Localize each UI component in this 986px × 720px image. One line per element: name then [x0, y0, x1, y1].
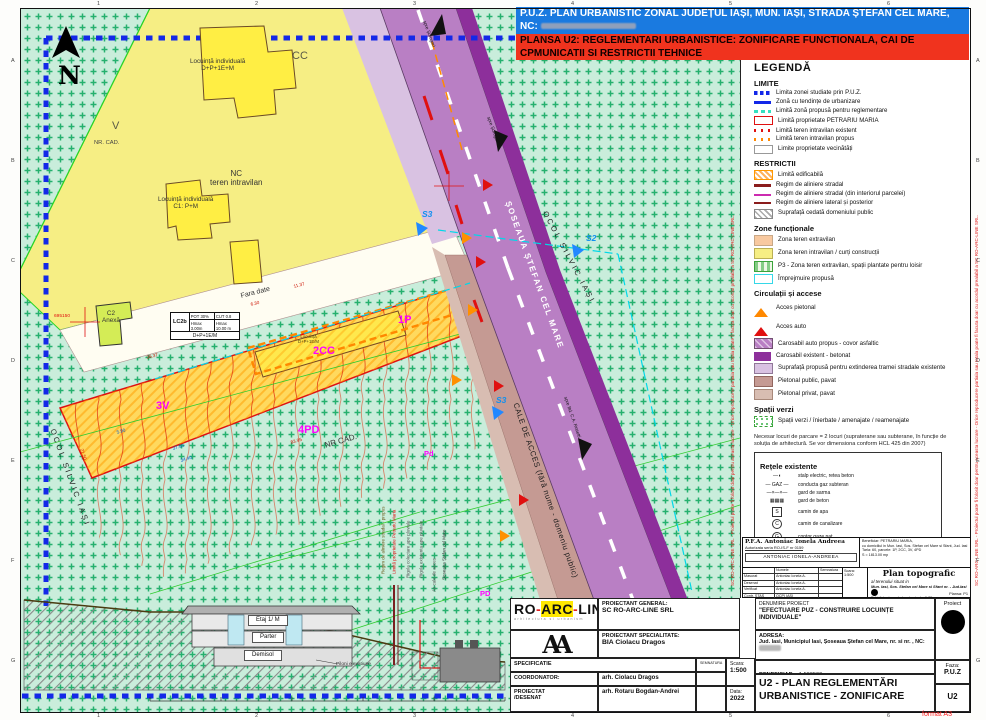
- map-label: 11.37: [293, 281, 305, 289]
- plansa-value: P1: [963, 591, 968, 596]
- grayHatch-swatch: [754, 209, 773, 219]
- map-label: CALE DE ACCES (fără nume - domeniu publi…: [511, 402, 579, 579]
- proiectant-general: SC RO-ARC-LINE SRL: [602, 607, 736, 614]
- frame-number: 5: [729, 713, 732, 719]
- legend-item: Limita zonei studiate prin P.U.Z.: [754, 90, 964, 97]
- frame-letter: F: [976, 558, 979, 564]
- networks-box: Rețele existente —◖stalp electric, retea…: [754, 452, 942, 549]
- topo-scale: 1:500: [844, 573, 854, 577]
- legend-item: Suprafață cedată domeniului public: [754, 209, 964, 219]
- network-item-label: gard de sarma: [798, 490, 830, 496]
- proiectat-label: PROIECTAT /DESENAT: [510, 686, 598, 712]
- map-label: Ax cale de acces: [433, 558, 438, 592]
- map-label: S2: [586, 234, 596, 244]
- legend-item-label: Limită zonă propusă pentru reglementare: [776, 108, 887, 115]
- copyright-note-outer: SC RO-ARC-LINE SRL - Proiectul poate fi …: [974, 120, 979, 680]
- plan-topografic-block: P.F.A. Antoniac Ionela Andreea Autorizat…: [742, 537, 971, 598]
- legend-item: Limită zonă propusă pentru reglementare: [754, 108, 964, 115]
- lamp-symbol: —◖: [760, 473, 794, 479]
- legend: LEGENDĂ LIMITELimita zonei studiate prin…: [754, 62, 964, 549]
- network-item: Scamin de apa: [760, 507, 936, 517]
- map-label: spre Bd. C.A. Rosetti: [563, 396, 582, 438]
- cyanRect-swatch: [754, 274, 773, 284]
- legend-item-label: Limita zonei studiate prin P.U.Z.: [776, 90, 862, 97]
- copyright-note-inner: SC RO-ARC-LINE SRL - Proiectul poate fi …: [730, 120, 735, 680]
- peach-swatch: [754, 235, 773, 246]
- frame-number: 5: [729, 1, 732, 7]
- legend-item-label: Limită teren intravilan existent: [776, 128, 857, 135]
- magentaLine-swatch: [754, 194, 771, 196]
- format-note: format A3: [922, 711, 952, 718]
- legend-item: Acces auto: [754, 319, 964, 336]
- legend-item: Zonă cu tendințe de urbanizare: [754, 99, 964, 106]
- coordonator-label: COORDONATOR:: [510, 672, 598, 686]
- legend-item: Zona teren intravilan / curți construcți…: [754, 248, 964, 259]
- frame-letter: B: [976, 158, 980, 164]
- redDots-swatch: [754, 129, 771, 132]
- legend-section-title: LIMITE: [754, 79, 964, 88]
- map-label: S3: [496, 396, 506, 406]
- logo-subtitle: arhitectura si urbanism: [514, 617, 594, 621]
- map-label: Locuință D+P+1E/M: [298, 335, 319, 345]
- frame-number: 6: [887, 713, 890, 719]
- darkPurple-swatch: [754, 352, 771, 361]
- map-label: 3V: [156, 400, 169, 412]
- plansa-label: Plansa:: [949, 591, 962, 596]
- proiectant-specialitate: BIA Ciolacu Dragos: [602, 639, 736, 646]
- network-item-label: conducta gaz subteran: [798, 482, 849, 488]
- legend-section-title: Circulații și accese: [754, 289, 964, 298]
- network-item: —×—×—gard de sarma: [760, 490, 936, 496]
- map-label: Demisol: [244, 650, 282, 661]
- parking-note: Necesar locuri de parcare = 2 locuri (su…: [754, 434, 950, 448]
- map-label: 37.50: [172, 443, 184, 451]
- map-label: OCOL SILVIC IAȘI: [48, 428, 91, 528]
- legend-item: Spații verzi / înierbate / amenajate / r…: [754, 416, 964, 427]
- map-label: Etaj 1/ M: [248, 615, 288, 626]
- legend-item-label: Limite proprietate vecinătăți: [778, 146, 853, 153]
- frame-letter: A: [976, 58, 980, 64]
- map-label: spre Șorogari: [486, 116, 500, 144]
- frame-number: 1: [97, 713, 100, 719]
- legend-item: Acces pietonal: [754, 300, 964, 317]
- legend-item-label: Carosabil auto propus - covor asfaltic: [778, 341, 879, 348]
- map-label: Locuință individuală C1: P+M: [158, 196, 213, 210]
- ci-symbol: C: [760, 519, 794, 529]
- legend-item: Împrejmuire propusă: [754, 274, 964, 284]
- legend-item-label: Regim de aliniere lateral și posterior: [776, 200, 873, 207]
- legend-item-label: Pietonal privat, pavat: [778, 391, 835, 398]
- legend-item-label: Zona teren extravilan: [778, 237, 835, 244]
- coordonator-signature: [696, 672, 726, 686]
- legend-item: Zona teren extravilan: [754, 235, 964, 246]
- legend-item-label: Zonă cu tendințe de urbanizare: [776, 99, 860, 106]
- map-label: 21.50: [79, 448, 87, 461]
- lc2b-regim: D+P+1E/M: [170, 332, 240, 340]
- redacted-nc-number: [541, 23, 636, 29]
- network-item: — GAZ —conducta gaz subteran: [760, 482, 936, 488]
- network-item-label: camin de apa: [798, 509, 828, 515]
- surveyor-authorization: Autorizata seria RO-IS-F nr 0159: [745, 545, 803, 551]
- legend-item: Regim de aliniere stradal: [754, 182, 964, 189]
- blueDash-swatch: [754, 91, 771, 95]
- map-label: CC: [292, 50, 308, 62]
- map-label: V: [112, 120, 119, 132]
- sheet-title-line2: URBANISTICE - ZONIFICARE: [759, 690, 904, 702]
- legend-item: Pietonal privat, pavat: [754, 389, 964, 400]
- frame-letter: D: [976, 358, 980, 364]
- map-label: NC teren intravilan: [210, 170, 262, 188]
- sq-symbol: S: [760, 507, 794, 517]
- denumire-proiect: "EFECTUARE PUZ - CONSTRUIRE LOCUINȚE IND…: [759, 607, 931, 621]
- greenHatch-swatch: [754, 261, 773, 272]
- legend-item: P3 - Zona teren extravilan, spații plant…: [754, 261, 964, 272]
- map-label: Pd: [424, 450, 434, 458]
- frame-letter: G: [11, 658, 15, 664]
- adresa-value: Jud. Iasi, Municipiul Iasi, Șoseaua Ștef…: [759, 639, 925, 645]
- purpleHatch-swatch: [754, 338, 773, 349]
- legend-item: Regim de aliniere lateral și posterior: [754, 200, 964, 207]
- legend-item: Limită edificabilă: [754, 170, 964, 180]
- legend-section-title: Spații verzi: [754, 405, 964, 414]
- legend-item: Carosabil existent - betonat: [754, 352, 964, 361]
- blueSolid-swatch: [754, 101, 771, 104]
- frame-number: 3: [413, 713, 416, 719]
- frame-letter: E: [11, 458, 15, 464]
- triR-swatch: [754, 319, 768, 336]
- map-label: Fara date: [240, 286, 271, 301]
- darkredThick-swatch: [754, 184, 771, 188]
- lightBrown-swatch: [754, 389, 773, 400]
- title-bar-red: PLANSA U2: REGLEMENTARI URBANISTICE: ZON…: [516, 34, 969, 60]
- frame-letter: E: [976, 458, 980, 464]
- legend-item: Limită teren intravilan propus: [754, 136, 964, 143]
- network-item: —◖stalp electric, retea beton: [760, 473, 936, 479]
- network-item: Ccamin de canalizare: [760, 519, 936, 529]
- triO-swatch: [754, 300, 768, 317]
- col-name: Numele: [775, 568, 819, 573]
- surveyor-stamp: ANTONIAC IONELA-ANDREEA: [745, 553, 857, 562]
- legend-item-label: Regim de aliniere stradal (din interioru…: [776, 191, 905, 198]
- specificatie-cell: SPECIFICATIE: [510, 658, 696, 672]
- legend-title: LEGENDĂ: [754, 62, 964, 74]
- proiectat-name: arh. Rotaru Bogdan-Andrei: [598, 686, 696, 712]
- frame-letter: C: [11, 258, 15, 264]
- lc2b-cut: CUT 0.8: [215, 313, 239, 319]
- redRect-swatch: [754, 116, 773, 125]
- brown-swatch: [754, 376, 773, 387]
- map-label: Parter: [252, 632, 284, 643]
- frame-number: 2: [255, 1, 258, 7]
- frame-number: 4: [571, 1, 574, 7]
- lc2b-pot: POT 30%: [190, 313, 215, 319]
- yellow-swatch: [754, 248, 773, 259]
- frame-letter: G: [976, 658, 980, 664]
- data-value: 2022: [730, 695, 751, 702]
- semnatura-cell: SEMNATURA: [696, 658, 726, 672]
- sheet-title-line1: U2 - PLAN REGLEMENTĂRI: [759, 677, 897, 689]
- map-label: 2CC: [313, 345, 335, 357]
- frame-number: 2: [255, 713, 258, 719]
- topo-location: Mun. Iasi, Sos. Stefan cel Mare si Sfant…: [871, 584, 967, 589]
- legend-item-label: Acces pietonal: [776, 305, 816, 312]
- proiect-label: Proiect: [939, 601, 966, 607]
- orangeDots-swatch: [754, 138, 771, 141]
- lc2b-indicator-box: LC2b POT 30% CUT 0.8 Hmax 3.00m Hmax 10.…: [170, 312, 240, 340]
- map-label: 1P: [398, 314, 411, 326]
- orangeHatch-swatch: [754, 170, 773, 180]
- map-label: Piloni elevatiune: [336, 662, 371, 667]
- lightPurple-swatch: [754, 363, 773, 374]
- lc2b-code: LC2b: [171, 313, 190, 331]
- frame-letter: B: [11, 158, 15, 164]
- redaction-dot: [871, 589, 878, 596]
- map-label: 6.30: [250, 300, 260, 307]
- map-label: 34.40: [180, 455, 192, 463]
- grayRect-swatch: [754, 145, 773, 154]
- map-label: 695150: [54, 314, 70, 319]
- legend-item: Pietonal public, pavat: [754, 376, 964, 387]
- lc2b-hmax1: Hmax 3.00m: [190, 320, 215, 331]
- sarma-symbol: —×—×—: [760, 490, 794, 496]
- map-label: 83.95: [290, 437, 302, 445]
- greenDots-swatch: [754, 416, 773, 427]
- legend-section-title: RESTRICTII: [754, 159, 964, 168]
- frame-number: 1: [97, 1, 100, 7]
- map-label: C2 Anexă: [102, 310, 120, 324]
- map-label: NR CAD.: [324, 433, 358, 451]
- plansa-code: U2: [939, 692, 966, 701]
- title-bar-blue: P.U.Z. PLAN URBANISTIC ZONAL JUDEȚUL IAȘ…: [516, 7, 969, 34]
- map-label: S3: [422, 210, 432, 220]
- beton-symbol: ▦▦▦: [760, 498, 794, 504]
- drawing-sheet: { "title_bar": { "line1": "P.U.Z. PLAN U…: [0, 0, 986, 720]
- title-block: RO-ARC-LINE arhitectura si urbanism AA S…: [510, 598, 970, 712]
- col-sign: Semnatura: [819, 568, 842, 573]
- legend-item: Limite proprietate vecinătăți: [754, 145, 964, 154]
- legend-item-label: P3 - Zona teren extravilan, spații plant…: [778, 263, 922, 270]
- redacted-project-number: [941, 610, 965, 634]
- beneficiary-notes: Beneficiar: PETRARIU MARIA,cu domiciliul…: [860, 538, 970, 567]
- map-label: spre Șorogari: [422, 20, 436, 48]
- map-label: 36.37: [146, 352, 158, 360]
- map-label: Rigola colectare ape pluviale: [407, 520, 412, 578]
- map-label: OCOL SILVIC IAȘI: [540, 210, 596, 305]
- network-item-label: gard de beton: [798, 498, 829, 504]
- map-label: Șoseaua Ștefan cel Mare: [443, 529, 448, 580]
- darkredThin-swatch: [754, 202, 771, 204]
- plansa-title: PLANSA U2: REGLEMENTARI URBANISTICE: ZON…: [520, 35, 914, 59]
- frame-number: 3: [413, 1, 416, 7]
- gaz-symbol: — GAZ —: [760, 482, 794, 488]
- map-label: Limită proprietate Petrariu Maria: [393, 510, 398, 574]
- map-label: Regim de aliniere stradal - propus: [382, 506, 387, 574]
- legend-item: Limită teren intravilan existent: [754, 128, 964, 135]
- network-item: ▦▦▦gard de beton: [760, 498, 936, 504]
- legend-item-label: Zona teren intravilan / curți construcți…: [778, 250, 879, 257]
- legend-item-label: Carosabil existent - betonat: [776, 353, 850, 360]
- map-label: Locuință individuală D+P+1E+M: [190, 58, 245, 72]
- legend-item-label: Suprafață propusă pentru extinderea tram…: [778, 365, 945, 372]
- legend-item: Limită proprietate PETRARIU MARIA: [754, 116, 964, 125]
- aa-monogram: AA: [514, 633, 594, 657]
- frame-letter: A: [11, 58, 15, 64]
- frame-number: 4: [571, 713, 574, 719]
- map-label: 5.90: [116, 428, 126, 435]
- map-label: Rigola existenta ape pluviale: [420, 521, 425, 578]
- legend-item-label: Suprafață cedată domeniului public: [778, 210, 873, 217]
- frame-letter: F: [11, 558, 14, 564]
- legend-item-label: Pietonal public, pavat: [778, 378, 836, 385]
- legend-item-label: Limită edificabilă: [778, 172, 823, 179]
- surveyor-table: NumeleSemnaturaMasuratAntoniac Ionela A.…: [743, 568, 843, 597]
- legend-item-label: Împrejmuire propusă: [778, 276, 834, 283]
- legend-item-label: Limită teren intravilan propus: [776, 136, 854, 143]
- frame-number: 6: [887, 1, 890, 7]
- map-label: 4PD: [298, 424, 319, 436]
- cyanDash-swatch: [754, 110, 771, 113]
- faza-value: P.U.Z: [939, 669, 966, 676]
- legend-item: Suprafață propusă pentru extinderea tram…: [754, 363, 964, 374]
- coordonator-name: arh. Ciolacu Dragos: [598, 672, 696, 686]
- network-item-label: stalp electric, retea beton: [798, 473, 854, 479]
- topo-title: Plan topografic: [871, 569, 967, 579]
- networks-title: Rețele existente: [760, 462, 936, 471]
- redacted-nc: [759, 645, 781, 651]
- legend-item-label: Spații verzi / înierbate / amenajate / r…: [778, 418, 909, 425]
- frame-letter: D: [11, 358, 15, 364]
- legend-item-label: Limită proprietate PETRARIU MARIA: [778, 118, 879, 125]
- legend-item-label: Regim de aliniere stradal: [776, 182, 843, 189]
- network-item-label: camin de canalizare: [798, 521, 842, 527]
- legend-section-title: Zone funcționale: [754, 224, 964, 233]
- map-label: N: [58, 62, 81, 90]
- map-label: PD: [480, 590, 490, 598]
- ro-arc-line-logo: RO-ARC-LINE: [514, 601, 594, 617]
- frame-letter: C: [976, 258, 980, 264]
- legend-item: Carosabil auto propus - covor asfaltic: [754, 338, 964, 349]
- legend-item: Regim de aliniere stradal (din interioru…: [754, 191, 964, 198]
- legend-item-label: Acces auto: [776, 324, 806, 331]
- map-label: NR. CAD.: [94, 140, 119, 146]
- proiectat-signature: [696, 686, 726, 712]
- lc2b-hmax2: Hmax 10.00 m: [215, 320, 239, 331]
